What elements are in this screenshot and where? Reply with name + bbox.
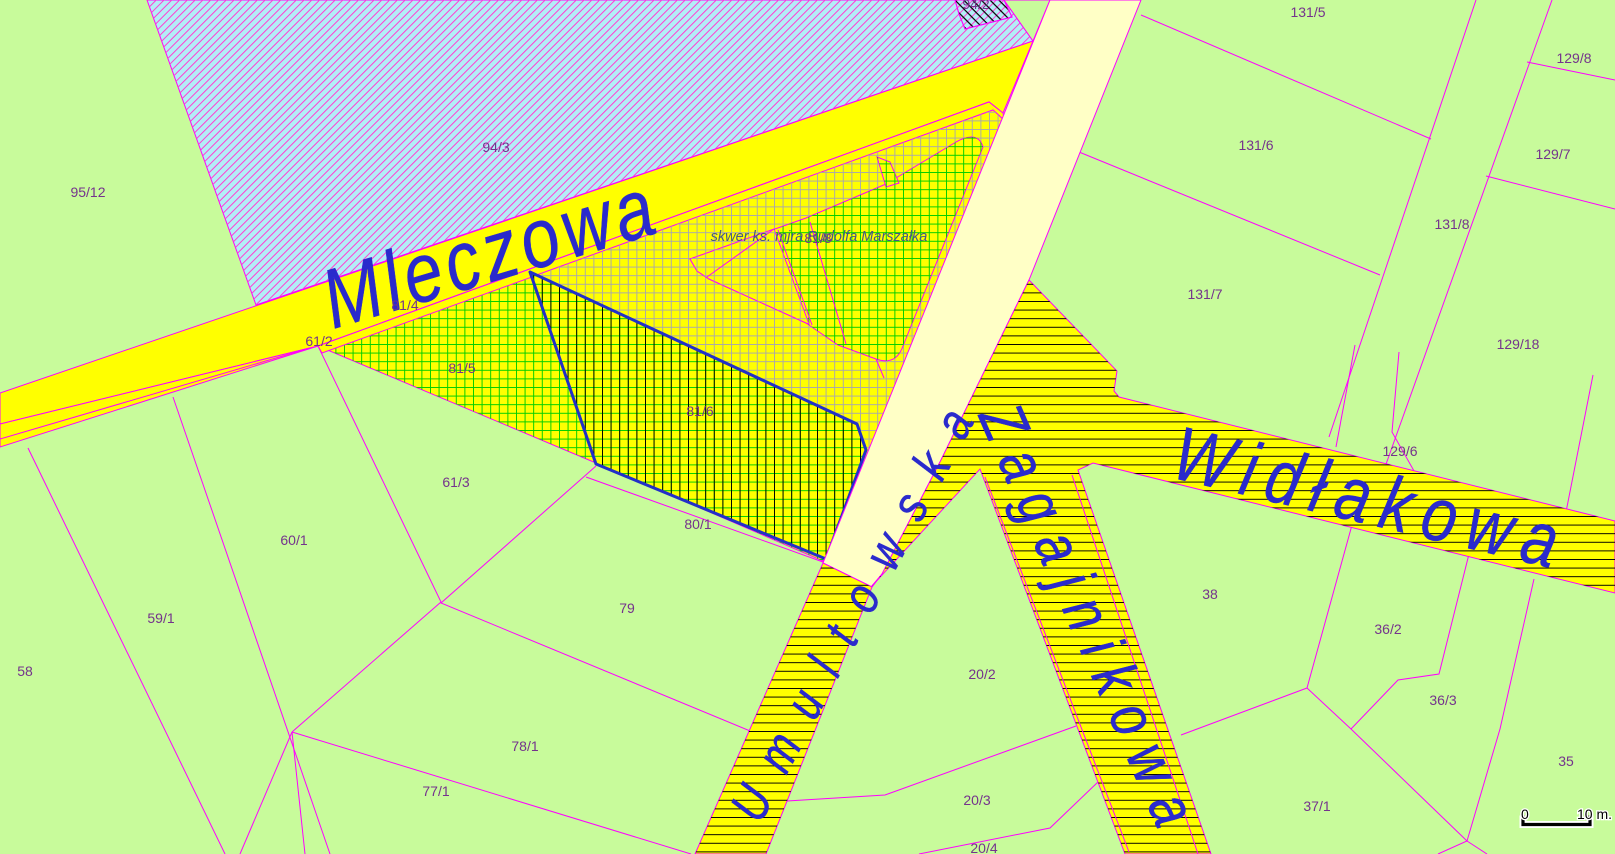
- svg-text:38: 38: [1202, 586, 1218, 602]
- svg-text:59/1: 59/1: [147, 610, 174, 626]
- svg-text:78/1: 78/1: [511, 738, 538, 754]
- svg-text:20/4: 20/4: [970, 840, 997, 854]
- svg-text:35: 35: [1558, 753, 1574, 769]
- svg-text:81/6: 81/6: [686, 403, 713, 419]
- svg-text:129/8: 129/8: [1556, 50, 1591, 66]
- svg-text:81/8: 81/8: [804, 230, 831, 246]
- svg-text:129/7: 129/7: [1535, 146, 1570, 162]
- svg-text:94/2: 94/2: [962, 0, 989, 12]
- svg-text:131/6: 131/6: [1238, 137, 1273, 153]
- svg-text:129/6: 129/6: [1382, 443, 1417, 459]
- svg-text:81/4: 81/4: [391, 297, 418, 313]
- svg-text:95/12: 95/12: [70, 184, 105, 200]
- svg-text:61/2: 61/2: [305, 333, 332, 349]
- svg-text:60/1: 60/1: [280, 532, 307, 548]
- svg-text:58: 58: [17, 663, 33, 679]
- svg-text:131/7: 131/7: [1187, 286, 1222, 302]
- svg-text:36/3: 36/3: [1429, 692, 1456, 708]
- svg-text:129/18: 129/18: [1497, 336, 1540, 352]
- svg-text:79: 79: [619, 600, 635, 616]
- svg-text:20/3: 20/3: [963, 792, 990, 808]
- svg-text:77/1: 77/1: [422, 783, 449, 799]
- svg-text:61/3: 61/3: [442, 474, 469, 490]
- svg-text:81/5: 81/5: [448, 360, 475, 376]
- svg-text:131/5: 131/5: [1290, 4, 1325, 20]
- svg-text:10 m.: 10 m.: [1577, 806, 1612, 822]
- svg-text:0: 0: [1521, 806, 1529, 822]
- svg-text:80/1: 80/1: [684, 516, 711, 532]
- svg-text:94/3: 94/3: [482, 139, 509, 155]
- svg-text:36/2: 36/2: [1374, 621, 1401, 637]
- svg-text:20/2: 20/2: [968, 666, 995, 682]
- svg-text:131/8: 131/8: [1434, 216, 1469, 232]
- svg-text:37/1: 37/1: [1303, 798, 1330, 814]
